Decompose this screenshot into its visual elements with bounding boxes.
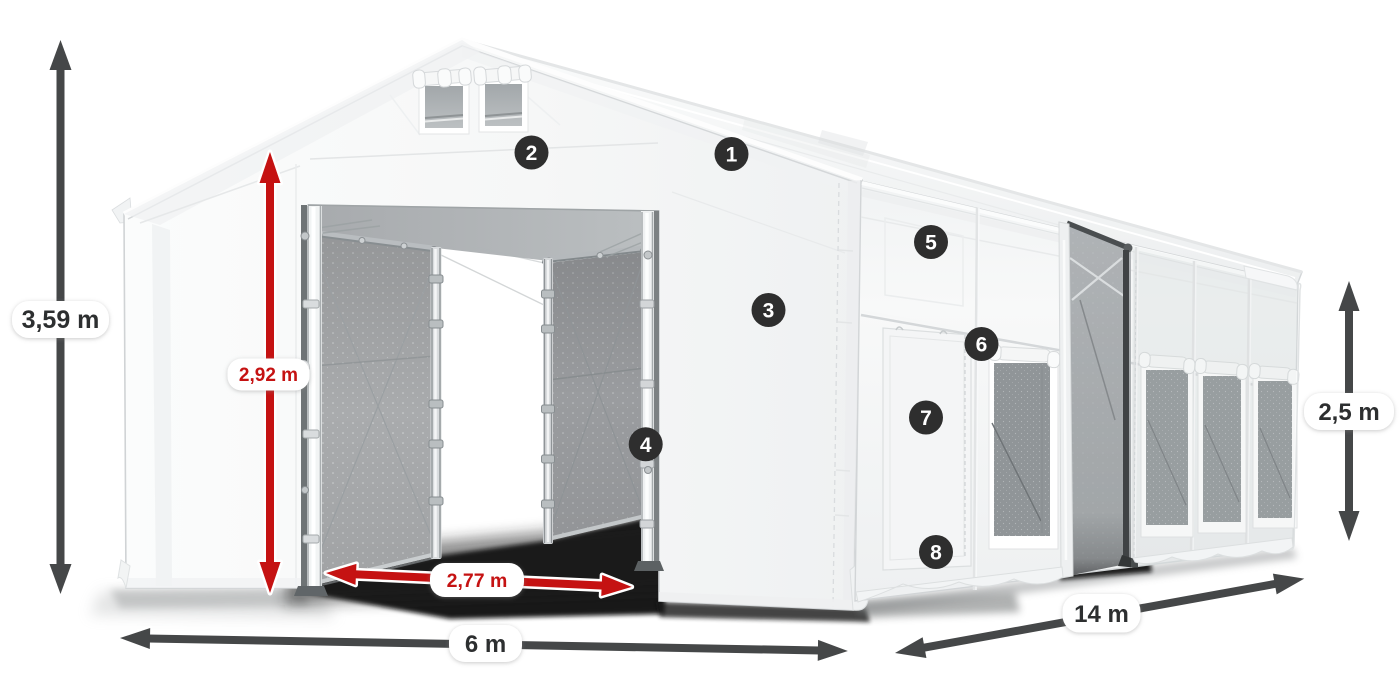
svg-text:3,59 m: 3,59 m [22, 306, 100, 334]
svg-text:8: 8 [930, 542, 942, 565]
svg-text:7: 7 [920, 407, 932, 430]
svg-text:14 m: 14 m [1074, 601, 1129, 628]
svg-text:2: 2 [526, 142, 538, 165]
svg-text:6: 6 [976, 334, 988, 357]
svg-text:1: 1 [726, 144, 738, 167]
svg-text:2,92 m: 2,92 m [239, 365, 298, 386]
svg-text:3: 3 [763, 300, 775, 323]
svg-text:6 m: 6 m [465, 631, 506, 658]
svg-text:2,77 m: 2,77 m [447, 570, 508, 592]
svg-text:4: 4 [640, 434, 652, 457]
svg-text:5: 5 [925, 232, 937, 255]
svg-text:2,5 m: 2,5 m [1318, 399, 1379, 426]
